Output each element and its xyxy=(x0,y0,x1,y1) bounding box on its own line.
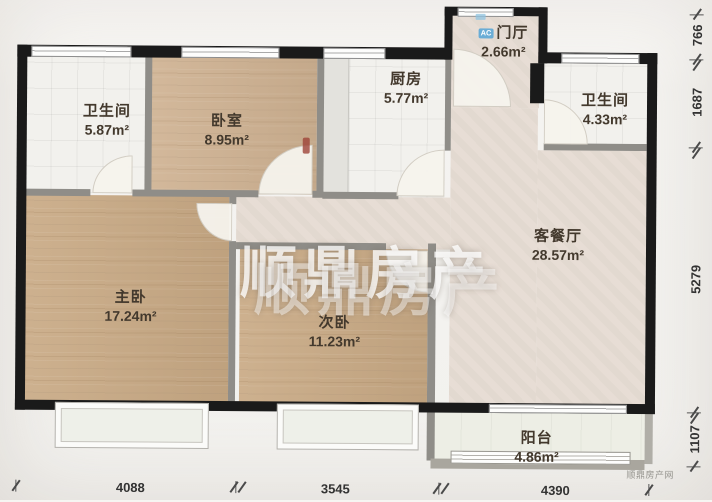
dim-bottom-3545: 3545 xyxy=(321,481,350,496)
label-living-dining: 客餐厅 28.57m² xyxy=(532,227,584,264)
watermark-text-echo: 顺鼎房产 xyxy=(253,244,506,328)
wall-stub-bath2 xyxy=(530,63,544,103)
dim-bottom-4390: 4390 xyxy=(541,483,570,498)
dim-right-1107: 1107 xyxy=(687,425,702,453)
room-area: 17.24m² xyxy=(104,307,156,325)
room-area: 8.95m² xyxy=(205,130,249,148)
window-foyer-top xyxy=(458,8,514,17)
room-area: 4.33m² xyxy=(581,110,629,128)
label-kitchen: 厨房 5.77m² xyxy=(384,70,429,107)
dim-right-1687: 1687 xyxy=(689,88,704,117)
window-bath1-top xyxy=(31,46,131,58)
window-bath2-top xyxy=(561,53,639,64)
wall-right xyxy=(645,53,658,414)
room-area: 11.23m² xyxy=(309,332,360,350)
bay-window-master xyxy=(55,402,209,449)
label-bathroom-2: 卫生间 4.33m² xyxy=(581,91,629,128)
wall-master-divider xyxy=(228,241,236,406)
label-bedroom: 卧室 8.95m² xyxy=(205,111,250,148)
bay-window-second xyxy=(277,403,419,450)
room-name: 卫生间 xyxy=(83,102,131,121)
wall-kitchen-bottom xyxy=(322,192,398,200)
room-name: 阳台 xyxy=(514,429,558,448)
room-name: 卫生间 xyxy=(581,91,629,110)
dim-bottom-4088: 4088 xyxy=(116,480,145,495)
room-name: 主卧 xyxy=(105,288,157,307)
room-area: 5.77m² xyxy=(384,89,428,107)
label-master-bedroom: 主卧 17.24m² xyxy=(104,288,156,325)
dim-right-766: 766 xyxy=(690,24,705,46)
window-kitchen-top xyxy=(323,48,385,59)
room-area: 28.57m² xyxy=(532,246,584,264)
room-area: 2.66m² xyxy=(478,42,528,60)
wall-kitchen-right xyxy=(445,56,452,151)
wall-balcony-right xyxy=(645,414,653,464)
wall-foyer-left xyxy=(444,9,452,60)
floorplan-photo: 卫生间 5.87m² 卧室 8.95m² 厨房 5.77m² AC 门厅 2.6… xyxy=(0,0,712,500)
corner-watermark: 顺鼎房产网 xyxy=(626,468,674,481)
kitchen-counter xyxy=(322,58,349,195)
wall-bath1-bottom xyxy=(24,189,90,196)
floorplan: 卫生间 5.87m² 卧室 8.95m² 厨房 5.77m² AC 门厅 2.6… xyxy=(0,0,712,502)
room-area: 5.87m² xyxy=(83,121,131,139)
ac-vent-icon xyxy=(476,14,486,20)
window-living-balcony xyxy=(489,404,627,414)
dimension-tick xyxy=(440,483,449,494)
window-bedroom-top xyxy=(181,47,279,59)
label-foyer: AC 门厅 2.66m² xyxy=(478,23,528,60)
room-name: 门厅 xyxy=(496,23,528,42)
wall-bath1-bedroom xyxy=(144,54,152,194)
room-name: 客餐厅 xyxy=(532,227,584,246)
wall-bedroom-kitchen xyxy=(316,55,324,195)
room-name: 厨房 xyxy=(384,70,428,89)
room-area: 4.86m² xyxy=(514,448,558,466)
ac-badge: AC xyxy=(479,28,494,38)
label-bathroom-1: 卫生间 5.87m² xyxy=(83,102,131,139)
room-floor-living-right xyxy=(536,150,647,406)
room-name: 卧室 xyxy=(205,111,249,130)
radiator-mark xyxy=(303,138,310,154)
wall-bedroom-bottom-left xyxy=(132,189,258,197)
dimension-tick xyxy=(237,481,246,492)
wall-bath2-bottom xyxy=(544,143,647,151)
label-balcony: 阳台 4.86m² xyxy=(514,429,559,466)
dim-right-5279: 5279 xyxy=(688,265,703,294)
